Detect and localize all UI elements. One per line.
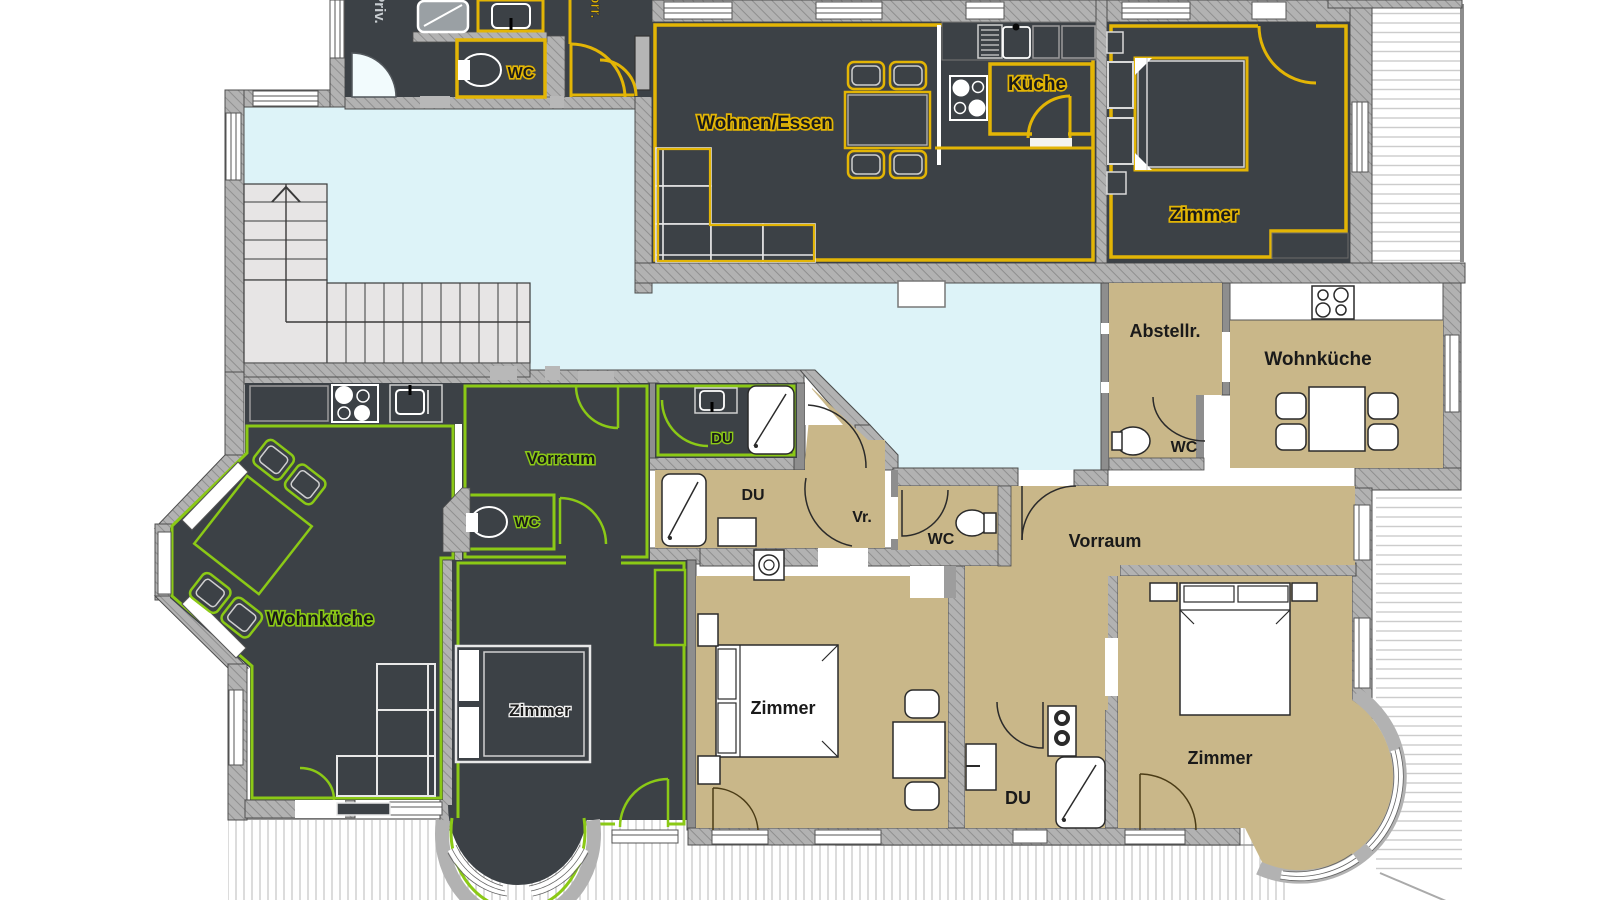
svg-text:DU: DU (741, 487, 764, 504)
svg-text:Priv.: Priv. (371, 0, 388, 24)
svg-text:Vorraum: Vorraum (1069, 531, 1142, 551)
svg-text:Zimmer: Zimmer (509, 701, 571, 720)
svg-text:Zimmer: Zimmer (750, 698, 815, 718)
svg-text:Wohnküche: Wohnküche (266, 609, 373, 630)
svg-text:Zimmer: Zimmer (1170, 205, 1239, 226)
svg-text:Vorr.: Vorr. (587, 0, 604, 19)
svg-text:Abstellr.: Abstellr. (1129, 321, 1200, 341)
svg-text:Vorraum: Vorraum (527, 449, 596, 468)
svg-text:Küche: Küche (1008, 74, 1066, 95)
svg-text:DU: DU (1005, 788, 1031, 808)
svg-text:DU: DU (711, 430, 733, 447)
svg-text:Wohnen/Essen: Wohnen/Essen (697, 113, 833, 134)
svg-text:WC: WC (515, 514, 540, 531)
svg-text:Wohnküche: Wohnküche (1264, 349, 1371, 370)
svg-text:WC: WC (928, 531, 955, 548)
svg-text:Vr.: Vr. (852, 509, 872, 526)
svg-text:WC: WC (508, 65, 535, 82)
svg-text:WC: WC (1171, 439, 1198, 456)
svg-text:Zimmer: Zimmer (1187, 748, 1252, 768)
